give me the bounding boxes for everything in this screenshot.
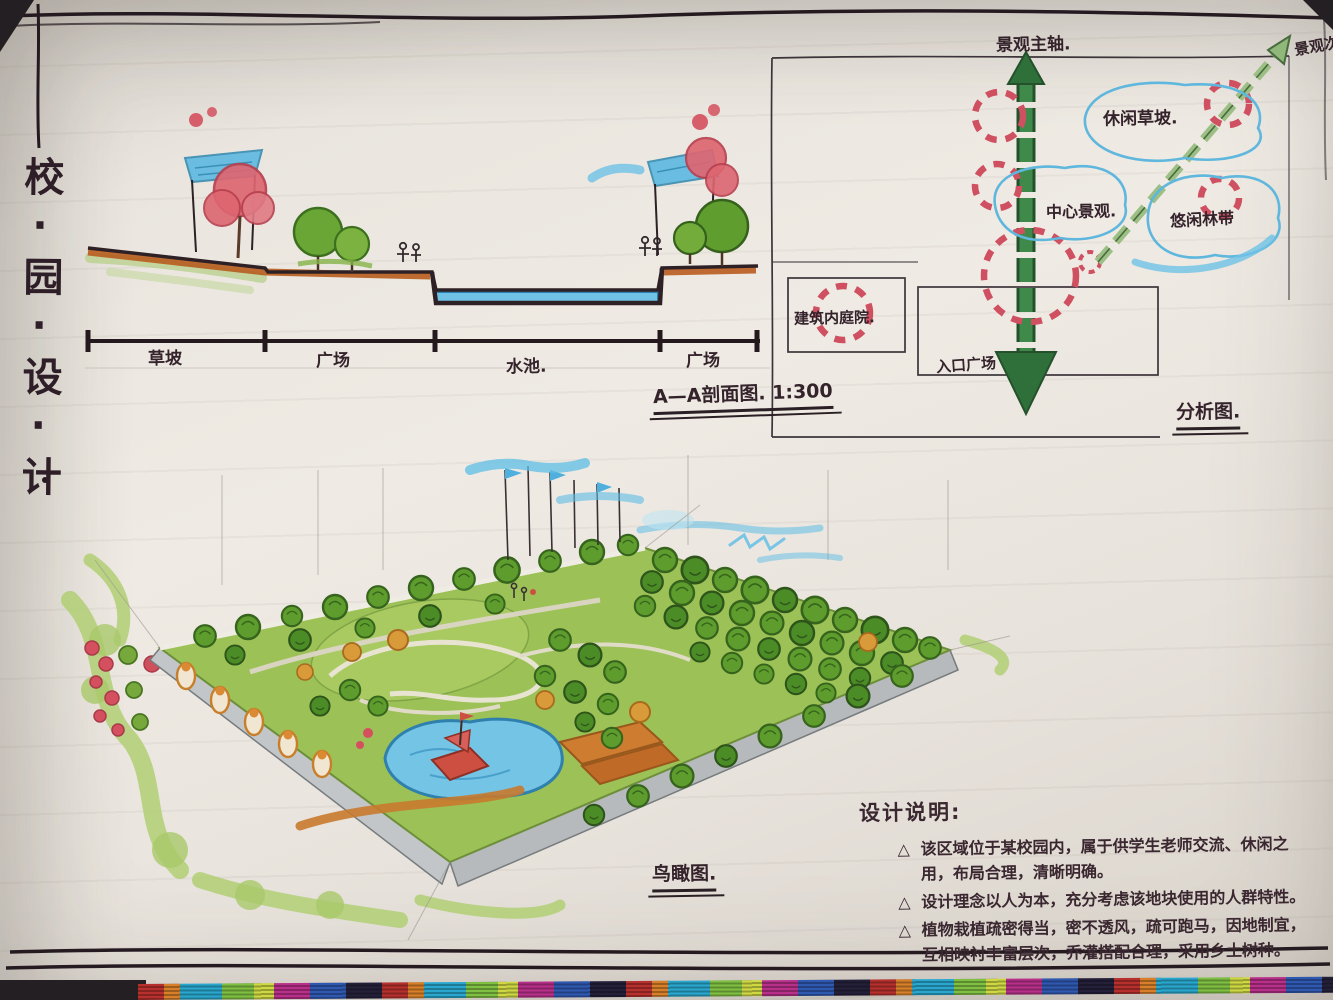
analysis-main-axis-label: 景观主轴.: [996, 29, 1071, 55]
analysis-zone-entrance: 入口广场: [935, 352, 996, 377]
section-title: A—A剖面图. 1:300: [652, 376, 833, 415]
section-label-pool: 水池.: [506, 352, 547, 378]
section-title-text: A—A剖面图.: [653, 382, 766, 408]
triangle-bullet-icon: △: [898, 890, 914, 915]
design-notes: 设计说明: △ 该区域位于某校园内，属于供学生老师交流、休闲之用，布局合理，清晰…: [859, 791, 1331, 972]
analysis-sketch: [771, 36, 1290, 437]
design-note-text: 该区域位于某校园内，属于供学生老师交流、休闲之用，布局合理，清晰明确。: [920, 831, 1318, 887]
analysis-zone-central: 中心景观.: [1046, 197, 1117, 222]
design-note-item: △ 设计理念以人为本，充分考虑该地块使用的人群特性。: [898, 884, 1318, 915]
design-note-item: △ 植物栽植疏密得当，密不透风，疏可跑马，因地制宜，互相映衬丰富层次，乔灌搭配合…: [898, 912, 1319, 968]
photo-corner-shadow: [0, 980, 146, 1000]
section-label-slope: 草坡: [148, 344, 182, 370]
design-note-item: △ 该区域位于某校园内，属于供学生老师交流、休闲之用，布局合理，清晰明确。: [897, 831, 1318, 887]
analysis-title-text: 分析图.: [1176, 396, 1241, 430]
design-board: 校·园·设·计 草坡 广场 水池. 广场 A—A剖面图. 1:300 景观主轴.…: [0, 0, 1333, 1000]
analysis-zone-forest-belt: 悠闲林带: [1169, 204, 1234, 231]
board-vertical-title: 校·园·设·计: [8, 156, 69, 503]
design-notes-heading: 设计说明:: [859, 791, 1329, 828]
section-scale: 1:300: [772, 380, 833, 404]
design-note-text: 植物栽植疏密得当，密不透风，疏可跑马，因地制宜，互相映衬丰富层次，乔灌搭配合理，…: [921, 912, 1319, 968]
aerial-title: 鸟瞰图.: [652, 858, 717, 892]
analysis-zone-leisure-slope: 休闲草坡.: [1103, 103, 1178, 129]
section-label-plaza-left: 广场: [316, 346, 350, 372]
section-sketch: [85, 104, 770, 368]
design-note-text: 设计理念以人为本，充分考虑该地块使用的人群特性。: [921, 884, 1305, 914]
triangle-bullet-icon: △: [897, 837, 914, 887]
analysis-title: 分析图.: [1176, 396, 1241, 430]
section-label-plaza-right: 广场: [686, 346, 720, 372]
analysis-zone-courtyard: 建筑内庭院.: [794, 306, 875, 328]
triangle-bullet-icon: △: [898, 918, 915, 968]
aerial-title-text: 鸟瞰图.: [652, 858, 717, 892]
